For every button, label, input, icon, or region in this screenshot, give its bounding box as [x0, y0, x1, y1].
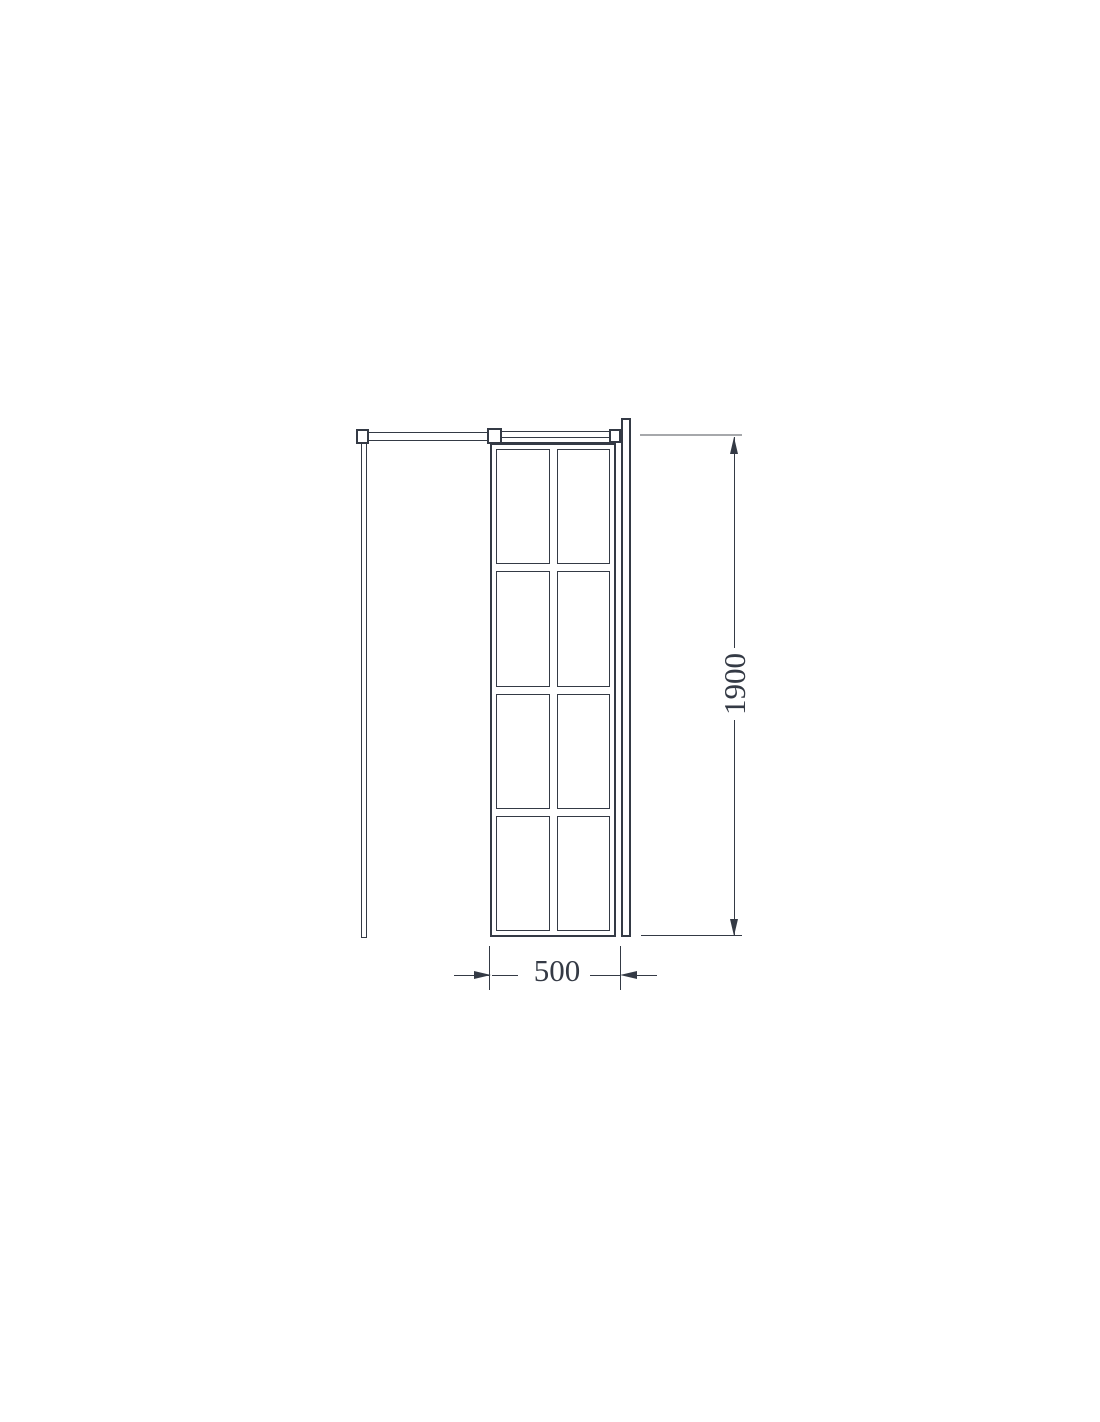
height-dimension-line-upper [734, 437, 735, 648]
width-extension-line-left [489, 946, 490, 990]
width-arrow-tail-right [637, 975, 657, 976]
glass-panel-frame [490, 443, 616, 937]
glass-pane [496, 694, 550, 809]
arrowhead-right [474, 971, 491, 979]
glass-pane [557, 449, 611, 564]
height-extension-line-bottom [641, 935, 742, 936]
arrowhead-left [620, 971, 637, 979]
panel-top-rail [501, 431, 617, 443]
width-extension-line-right [620, 946, 621, 990]
width-dimension-label: 500 [517, 952, 597, 990]
arrowhead-down [730, 919, 738, 936]
height-dimension-line-lower [734, 720, 735, 936]
width-dimension-line-right [590, 975, 620, 976]
wall-profile [621, 418, 631, 937]
glass-pane [496, 449, 550, 564]
rail-wall-bracket [609, 429, 621, 443]
height-extension-line-top [640, 434, 742, 436]
height-dimension-label: 1900 [717, 639, 753, 729]
glass-pane [496, 816, 550, 931]
glass-pane [496, 571, 550, 686]
glass-pane [557, 816, 611, 931]
top-rail-inner-line [502, 437, 616, 438]
glass-pane [557, 571, 611, 686]
glass-pane [557, 694, 611, 809]
width-dimension-line-left [492, 975, 518, 976]
pole-top-bracket [356, 429, 369, 444]
top-support-bar [368, 432, 501, 441]
technical-drawing-canvas: 1900 500 [0, 0, 1100, 1422]
arrowhead-up [730, 437, 738, 454]
left-support-pole [361, 441, 367, 938]
bar-panel-connector [487, 428, 502, 444]
